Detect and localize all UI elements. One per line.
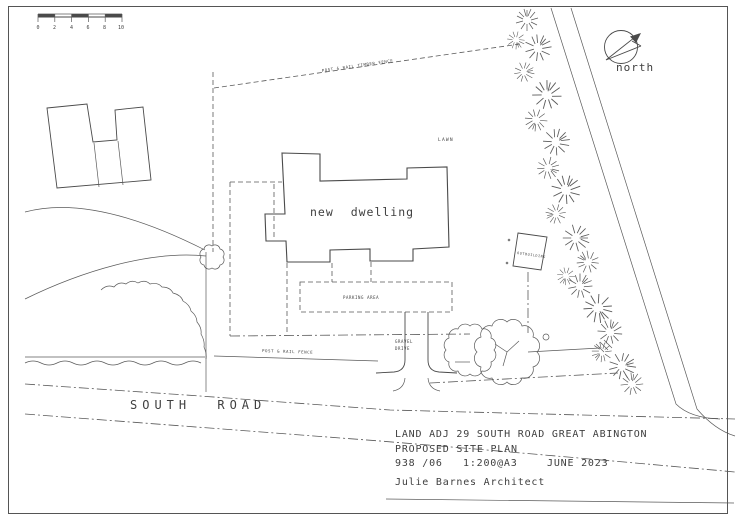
title-block: LAND ADJ 29 SOUTH ROAD GREAT ABINGTON PR… (386, 429, 734, 503)
tree-canopy (101, 281, 206, 359)
drive-label: GRAVEL (395, 339, 413, 344)
scale-tick-label: 4 (70, 25, 73, 31)
scale-tick-label: 0 (37, 25, 40, 31)
marker-dot (508, 239, 510, 241)
drive-curve (25, 208, 205, 250)
scale-bar-segment (72, 14, 89, 17)
outbuilding: OUTBUILDING (506, 233, 547, 333)
existing-building (47, 104, 151, 188)
hedge-shrub (588, 338, 616, 366)
title-date: JUNE 2023 (547, 458, 608, 469)
parking-area-label: PARKING AREA (343, 295, 379, 300)
hedge-shrub (573, 247, 604, 278)
road-label: SOUTH ROAD (130, 398, 266, 412)
site-plan-drawing: 0 2 4 6 8 10 north POST & RAIL TIMBER FE… (0, 0, 736, 520)
fence-top-label: POST & RAIL TIMBER FENCE (321, 58, 393, 73)
hedge-line (25, 361, 201, 365)
left-landscape (25, 208, 224, 392)
scale-bar-segment (105, 14, 122, 17)
guide-line (230, 334, 470, 336)
drive-curve (25, 255, 206, 299)
marker-dot (506, 262, 508, 264)
hedge-shrub (519, 29, 556, 66)
fences: POST & RAIL FENCE (214, 334, 618, 383)
hedge-shrub (516, 9, 538, 31)
tree-branches (495, 341, 519, 366)
title-project: LAND ADJ 29 SOUTH ROAD GREAT ABINGTON (395, 429, 647, 440)
hedge-shrub (619, 371, 644, 396)
road: SOUTH ROAD (25, 384, 735, 472)
new-dwelling-label: new dwelling (310, 205, 414, 219)
new-dwelling: new dwelling (265, 153, 449, 262)
drive-label: DRIVE (395, 346, 410, 351)
tree-canopy (444, 324, 496, 376)
tree-canopy (200, 245, 224, 269)
hedge-shrub (555, 265, 578, 288)
fence-bottom-label: POST & RAIL FENCE (262, 348, 313, 355)
hedge-shrub (505, 29, 528, 52)
outbuilding-label: OUTBUILDING (517, 251, 546, 259)
scale-bar-segment (38, 14, 55, 17)
site-plan-sheet: 0 2 4 6 8 10 north POST & RAIL TIMBER FE… (0, 0, 736, 520)
hedge-shrub (533, 153, 563, 183)
title-block-rule (386, 499, 734, 503)
north-label: north (616, 61, 654, 74)
hedge-shrub (513, 61, 536, 84)
title-scale: 1:200@A3 (463, 458, 518, 469)
fence-bottom (214, 356, 378, 361)
title-drawing: PROPOSED SITE PLAN (395, 444, 518, 455)
hedge-shrub (529, 77, 564, 112)
road-edge-bottom (25, 414, 735, 472)
title-job-number: 938 /06 (395, 458, 443, 469)
scale-tick-label: 2 (53, 25, 56, 31)
hedge-shrub (563, 225, 589, 251)
north-arrow: north (605, 31, 655, 75)
scale-tick-label: 6 (87, 25, 90, 31)
parking-area: PARKING AREA (300, 282, 452, 312)
scale-bar: 0 2 4 6 8 10 (37, 14, 125, 31)
hedge-shrub (545, 203, 568, 226)
hedge-shrub (578, 288, 617, 327)
title-architect: Julie Barnes Architect (395, 477, 545, 488)
hedge-shrub (538, 124, 574, 160)
hedge-shrub (522, 106, 550, 134)
hedge-shrub (546, 170, 585, 209)
hedge-shrub (594, 316, 625, 347)
scale-tick-label: 8 (103, 25, 106, 31)
site-boundaries: POST & RAIL TIMBER FENCE (213, 44, 520, 252)
lawn-label: LAWN (438, 137, 454, 143)
scale-tick-label: 10 (118, 25, 124, 31)
tree-small (543, 334, 549, 340)
